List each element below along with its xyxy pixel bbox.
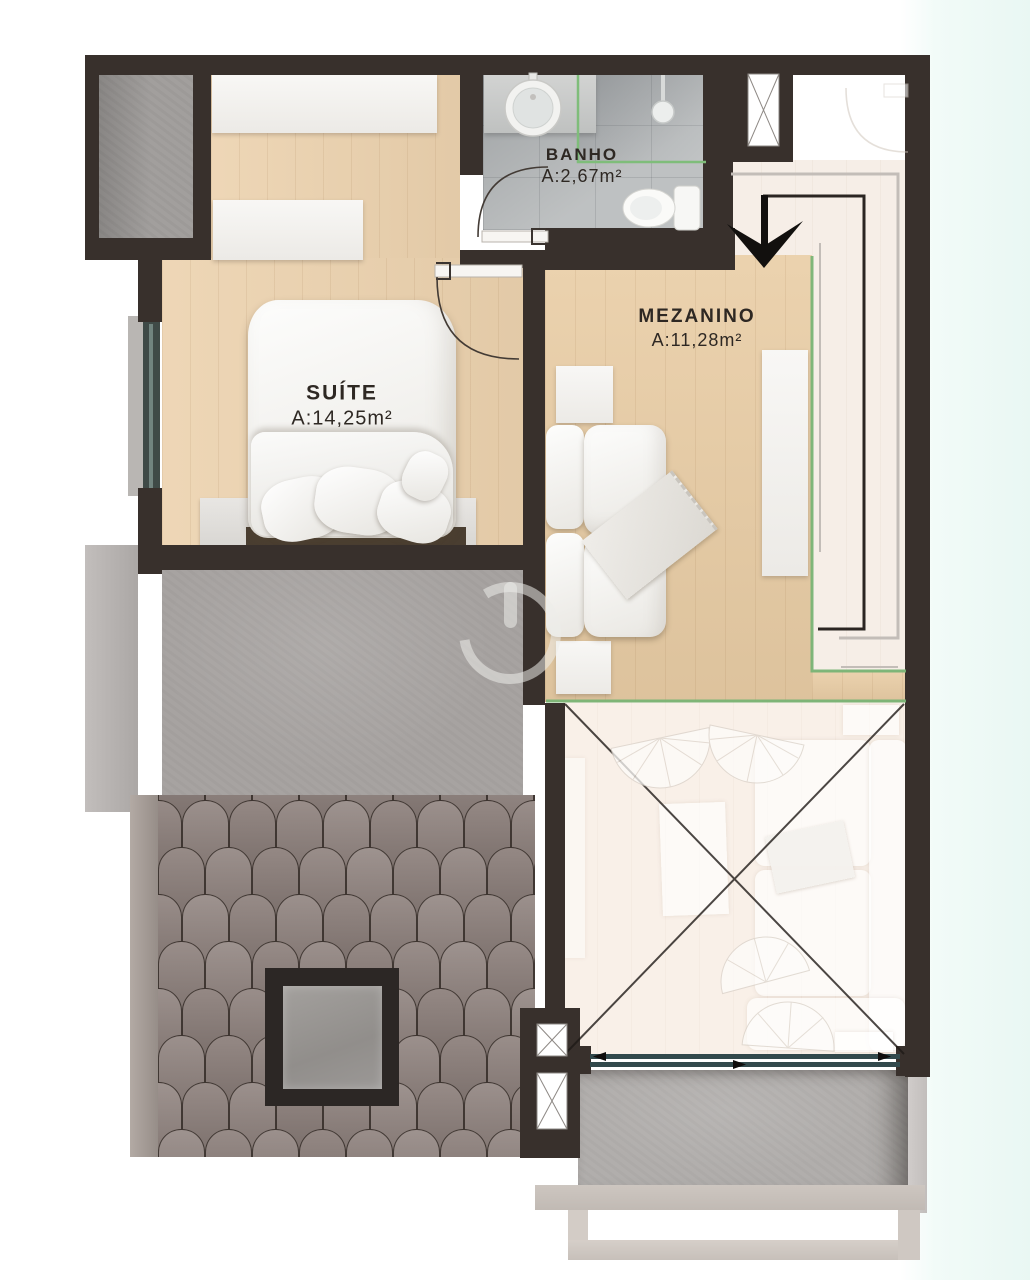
shower-head <box>652 75 674 123</box>
room-name: SUÍTE <box>291 380 392 406</box>
plan-linework <box>0 0 1030 1280</box>
toilet <box>623 186 700 230</box>
sliding-door <box>590 1052 900 1069</box>
room-label-banho: BANHO A:2,67m² <box>541 144 622 188</box>
room-area: A:14,25m² <box>291 407 392 432</box>
power-icon <box>447 570 574 697</box>
room-area: A:11,28m² <box>638 329 755 352</box>
door-leaf-suite <box>435 263 522 359</box>
room-name: MEZANINO <box>638 305 755 329</box>
entry-arrow-icon <box>727 195 803 268</box>
room-name: BANHO <box>541 144 622 165</box>
room-label-suite: SUÍTE A:14,25m² <box>291 380 392 431</box>
floor-plan: BANHO A:2,67m² SUÍTE A:14,25m² MEZANINO … <box>0 0 1030 1280</box>
fan-chair-icon <box>611 725 837 1051</box>
sink <box>505 73 561 136</box>
door-swing-entry <box>846 84 908 152</box>
room-label-mezanino: MEZANINO A:11,28m² <box>638 305 755 351</box>
room-area: A:2,67m² <box>541 165 622 188</box>
door-leaf-bathroom <box>478 167 548 244</box>
